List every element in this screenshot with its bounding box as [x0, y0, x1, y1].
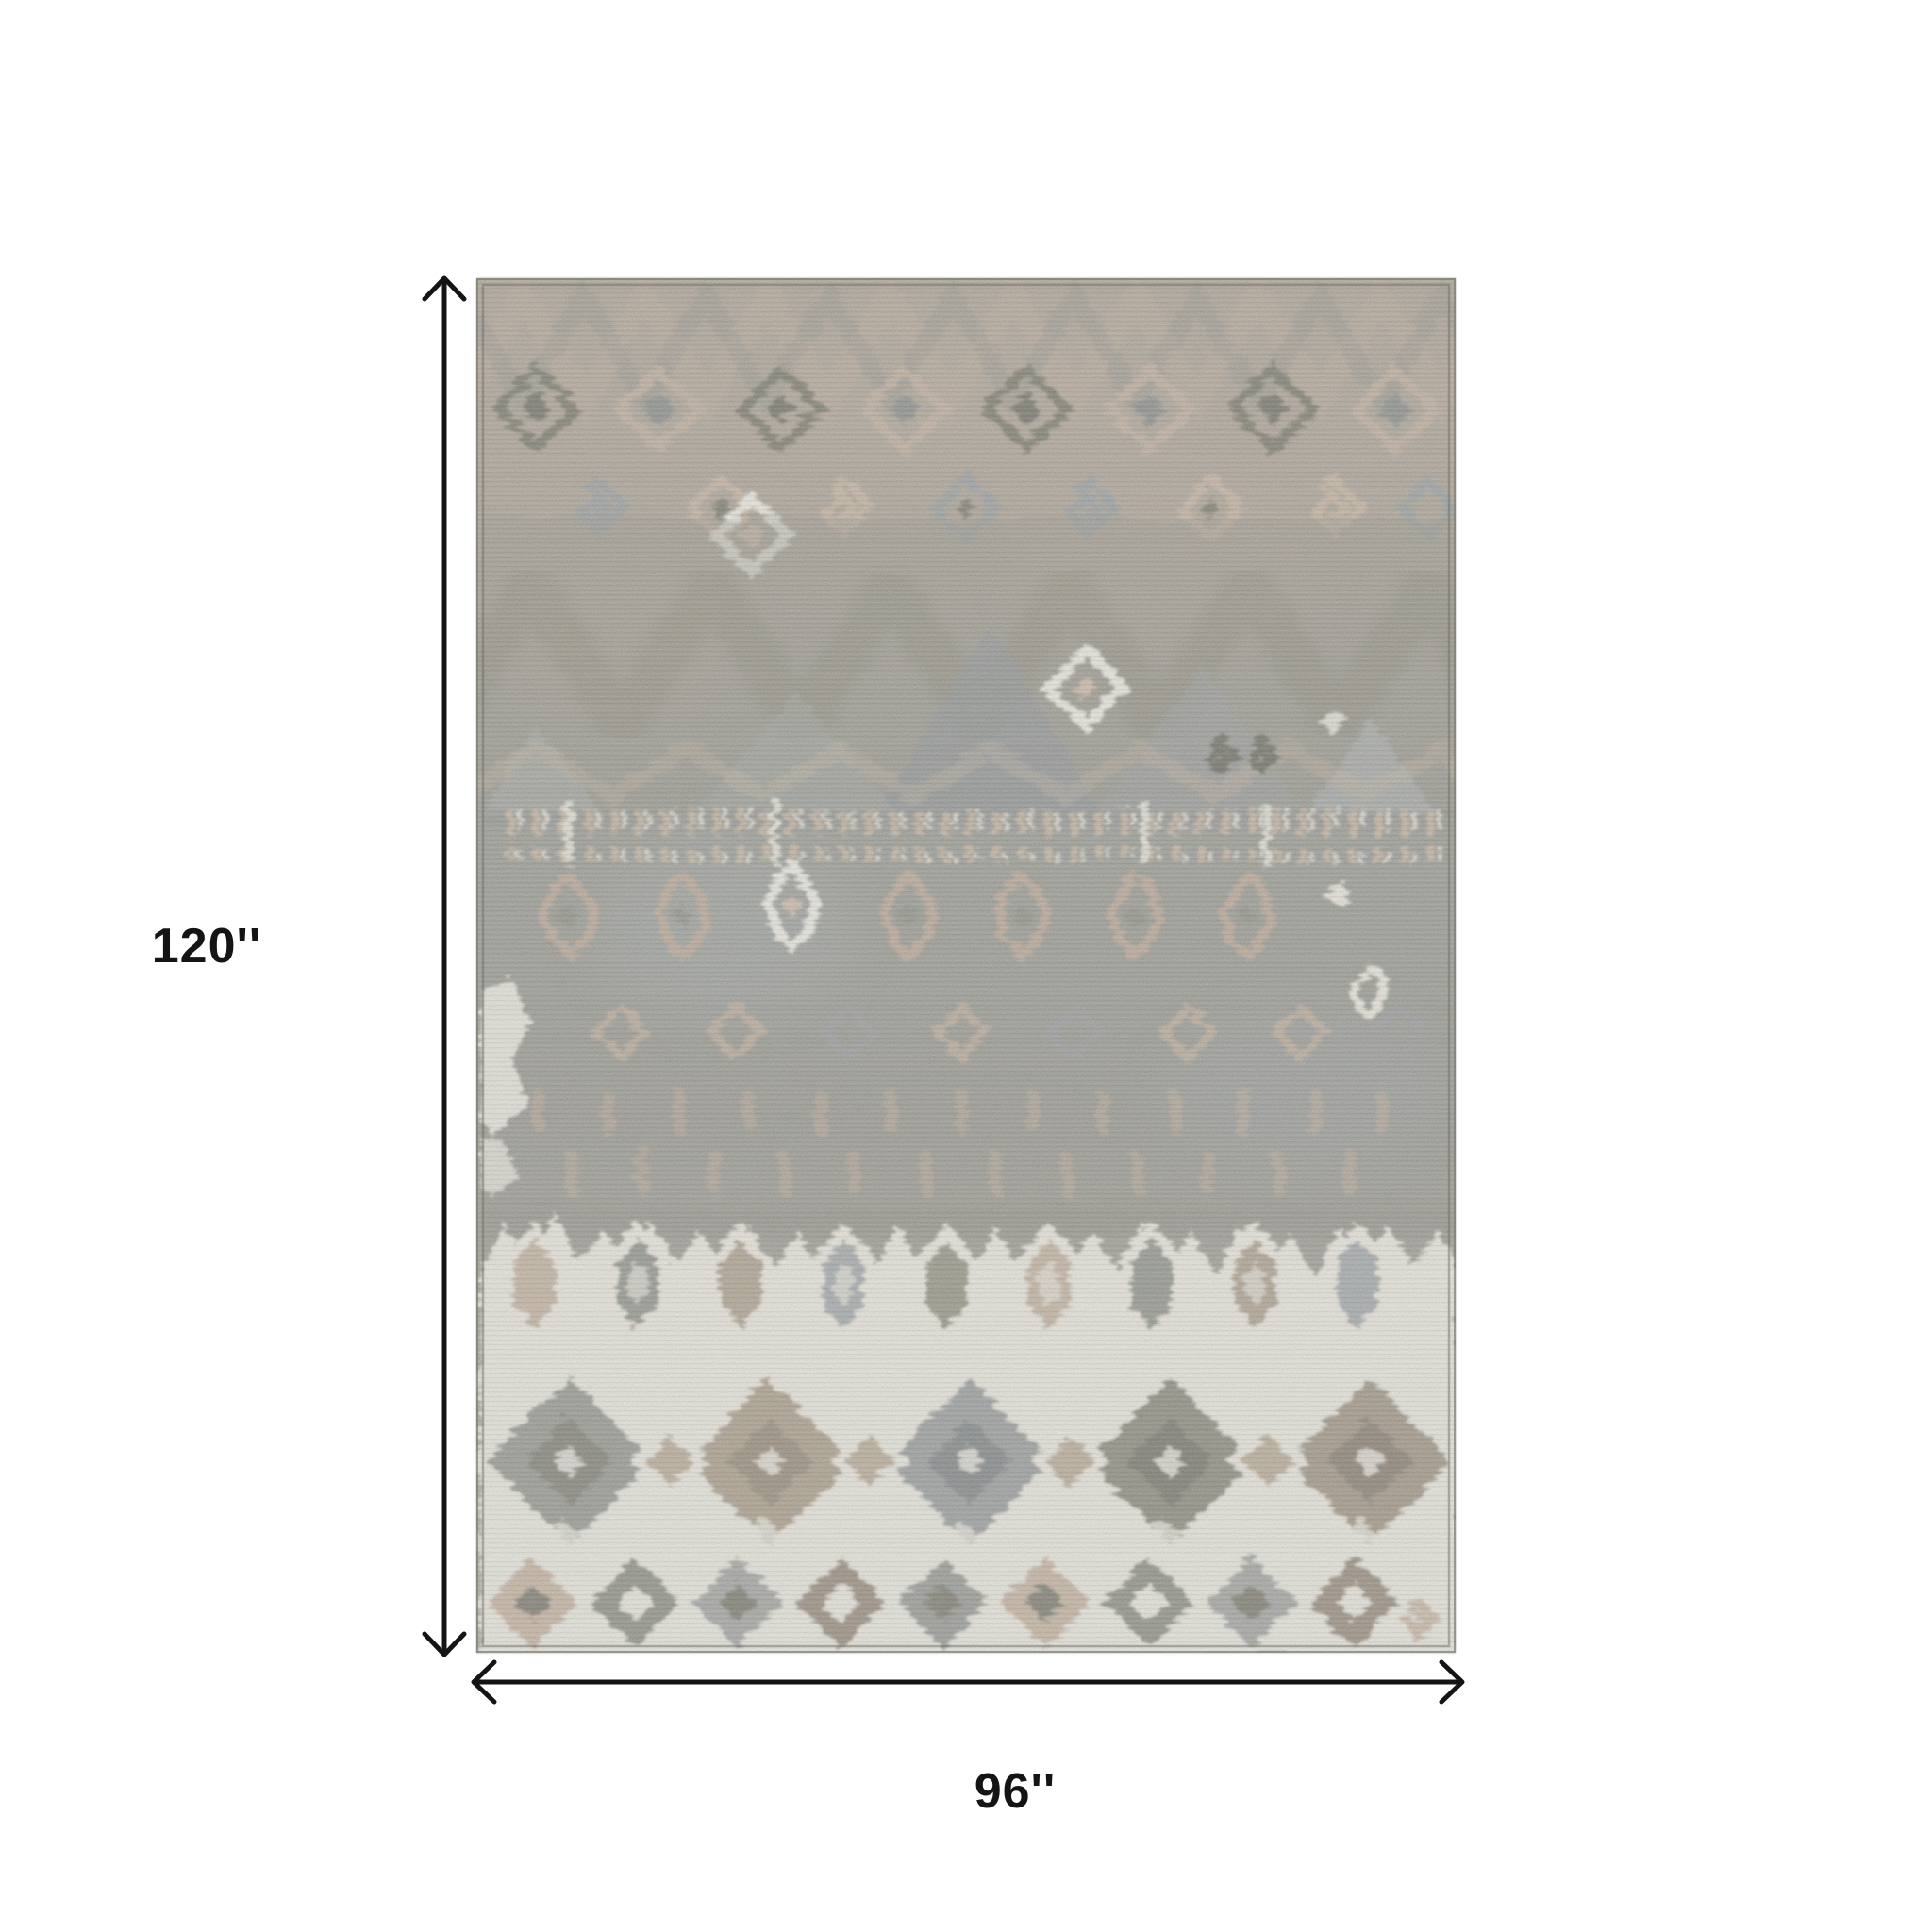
- width-dimension-label: 96'': [974, 1763, 1057, 1820]
- height-dimension-label: 120'': [152, 918, 262, 974]
- rug-photo: [476, 278, 1456, 1653]
- product-dimensions-figure: 120'' 96'': [0, 0, 1932, 1932]
- rug-image: [476, 278, 1456, 1653]
- height-dimension-arrow: [425, 278, 464, 1655]
- width-dimension-arrow: [474, 1662, 1462, 1702]
